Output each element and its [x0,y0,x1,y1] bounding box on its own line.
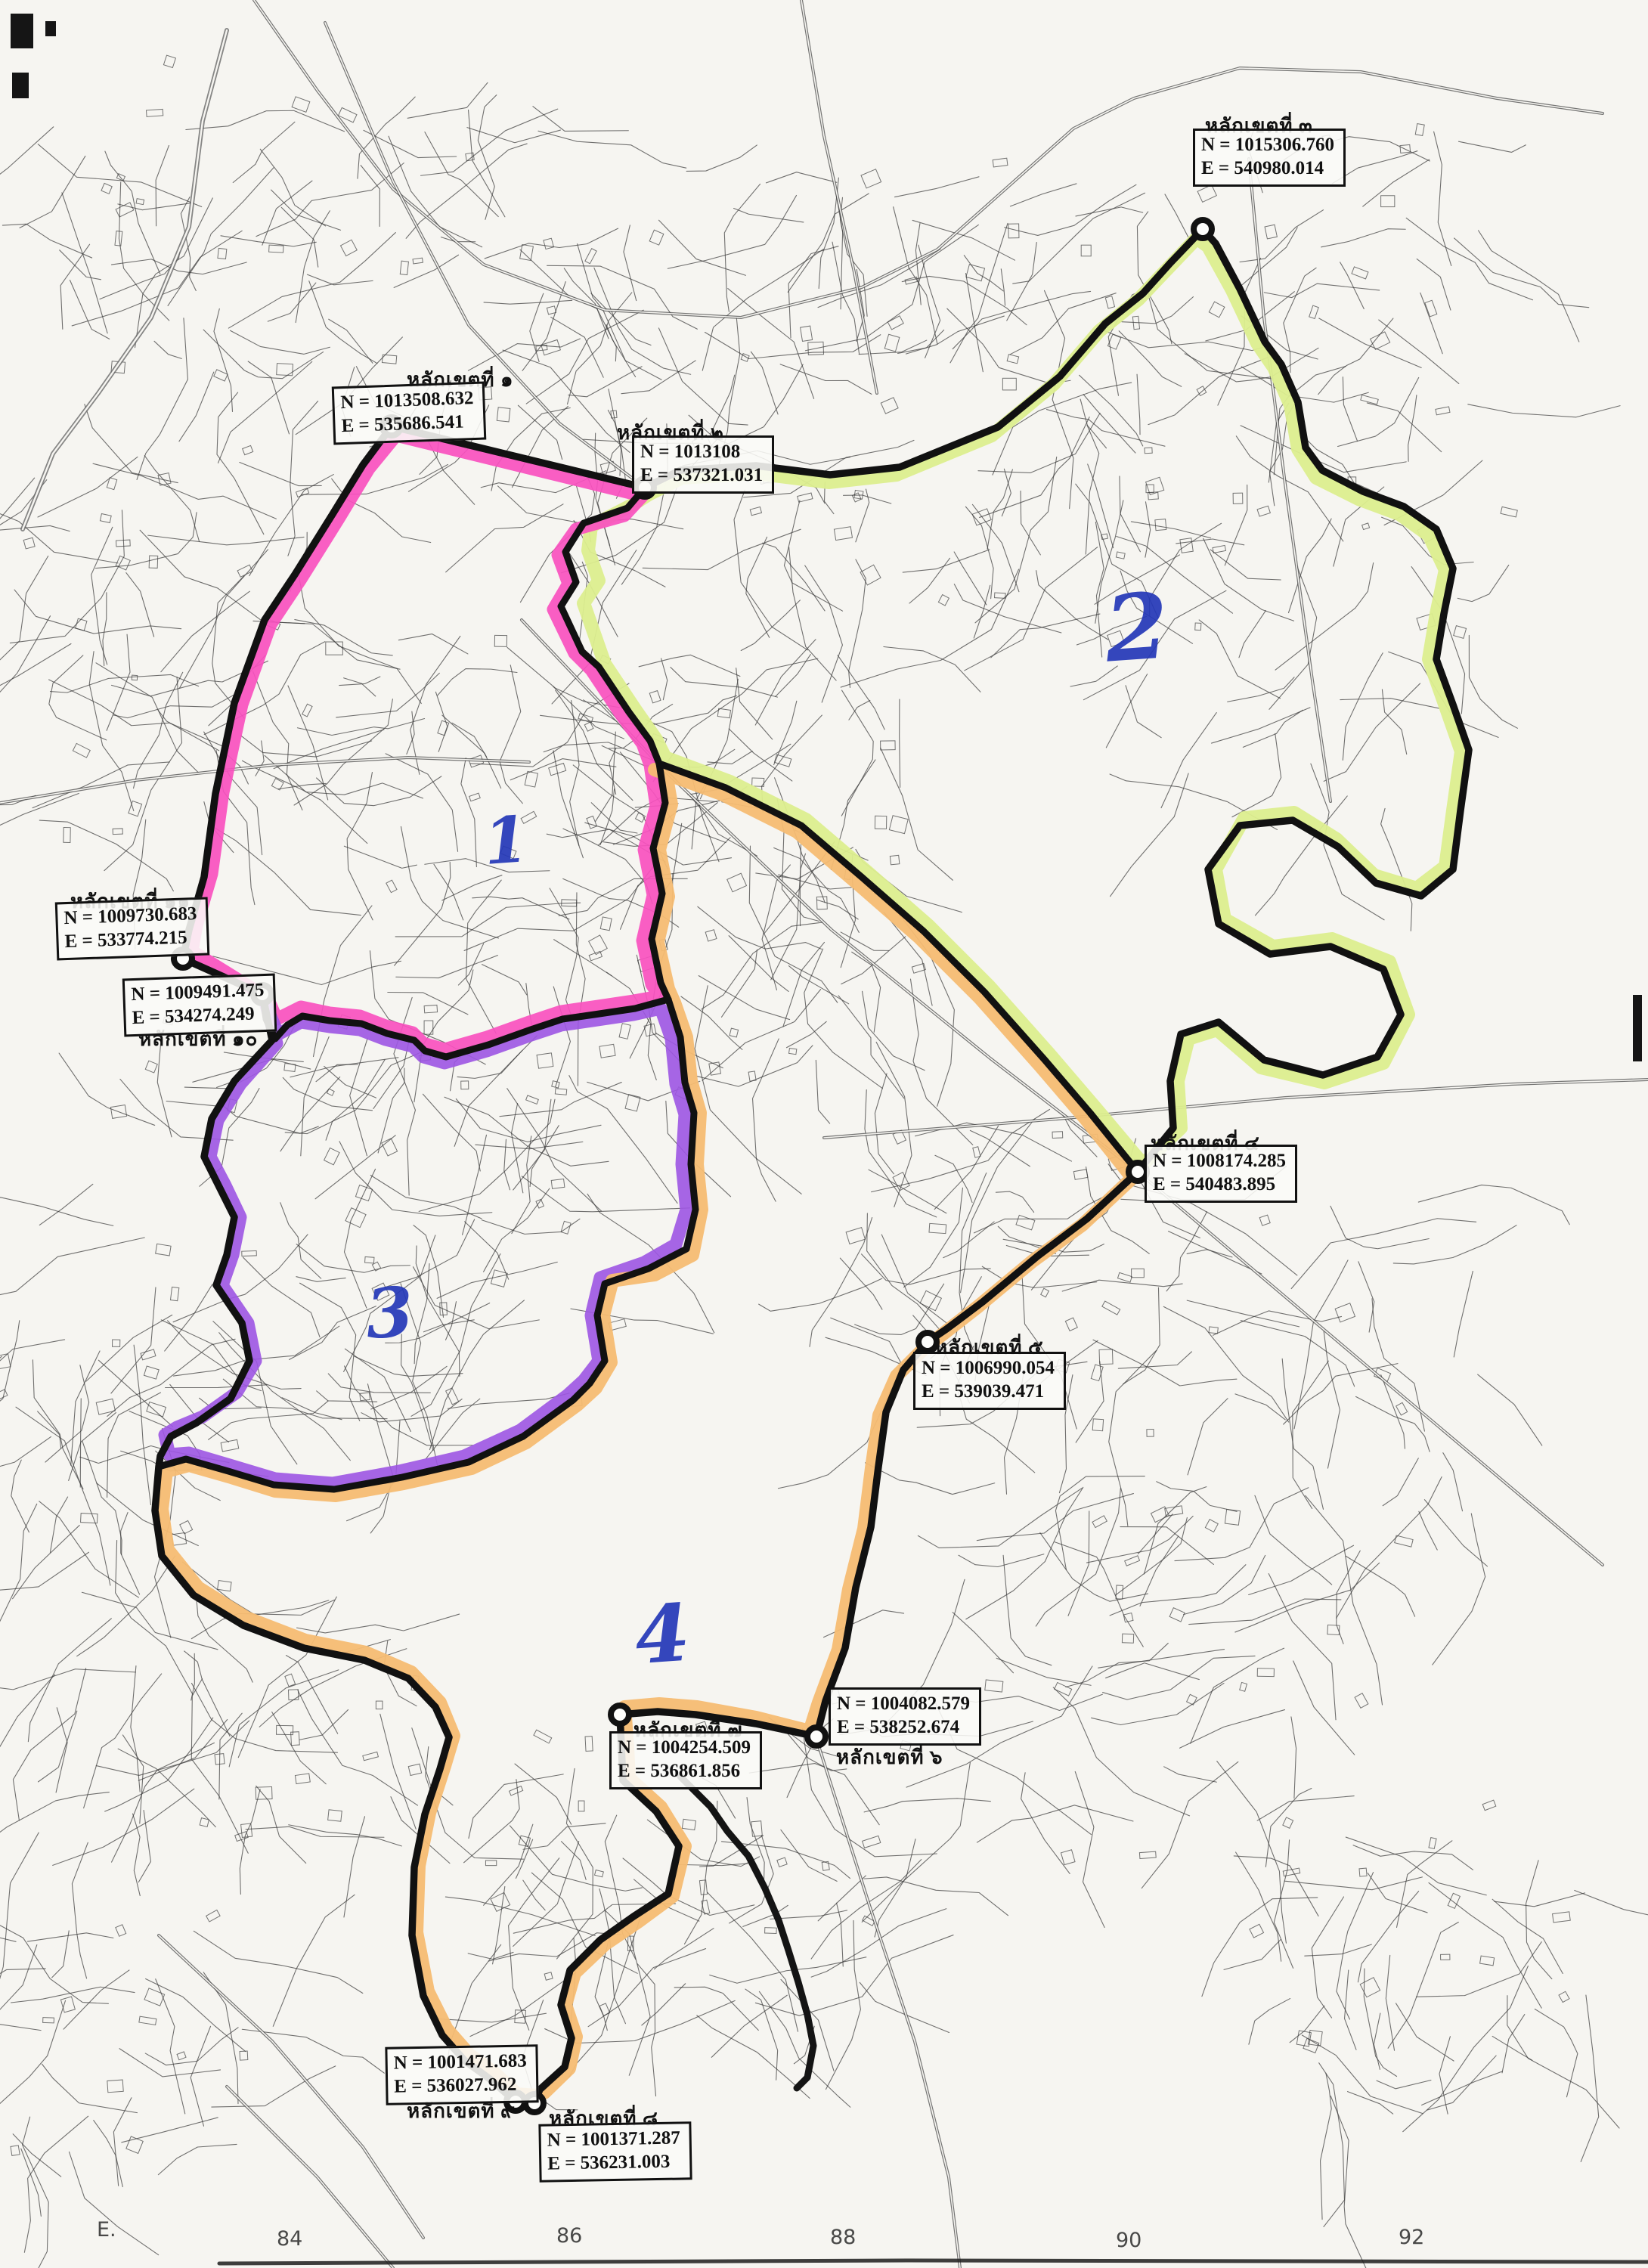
boundary-marker-circle-3 [1194,220,1212,238]
map-canvas [0,0,1648,2268]
street-network [0,55,1648,2268]
boundary-marker-label-11: N = 1009730.683E = 533774.215 [55,897,210,960]
grid-label-90: 90 [1116,2229,1142,2252]
boundary-marker-label-7: N = 1004254.509E = 536861.856 [609,1731,762,1789]
boundary-marker-label-8: N = 1001371.287E = 536231.003 [538,2121,692,2182]
marker-easting: E = 536027.962 [394,2073,528,2099]
marker-easting: E = 538252.674 [837,1715,970,1739]
marker-easting: E = 540483.895 [1153,1173,1286,1196]
marker-northing: N = 1001371.287 [547,2127,680,2152]
marker-easting: E = 537321.031 [640,463,763,487]
boundary-marker-label-6: N = 1004082.579E = 538252.674 [829,1687,981,1746]
boundary-marker-title-6: หลักเขตที่ ๖ [836,1742,943,1773]
marker-northing: N = 1004254.509 [618,1736,751,1759]
boundary-marker-label-5: N = 1006990.054E = 539039.471 [913,1352,1066,1410]
scanned-boundary-map: หลักเขตที่ ๑N = 1013508.632E = 535686.54… [0,0,1648,2268]
marker-easting: E = 539039.471 [922,1380,1055,1403]
grid-label-88: 88 [830,2226,856,2249]
marker-easting: E = 535686.541 [341,410,475,438]
marker-easting: E = 540980.014 [1201,156,1334,180]
marker-northing: N = 1006990.054 [922,1356,1055,1380]
grid-label-86: 86 [556,2224,582,2248]
zone-number-1: 1 [482,801,531,879]
boundary-marker-label-4: N = 1008174.285E = 540483.895 [1145,1145,1297,1203]
boundary-marker-circle-6 [807,1727,826,1746]
marker-northing: N = 1004082.579 [837,1692,970,1715]
major-roads [0,0,1648,2268]
zone-number-4: 4 [632,1586,693,1683]
boundary-marker-label-1: N = 1013508.632E = 535686.541 [332,381,487,445]
marker-northing: N = 1015306.760 [1201,133,1334,156]
marker-northing: N = 1001471.683 [393,2050,527,2075]
marker-northing: N = 1013108 [640,440,763,463]
marker-northing: N = 1008174.285 [1153,1149,1286,1173]
grid-label-E: E. [97,2218,116,2242]
marker-easting: E = 536861.856 [618,1759,751,1783]
boundary-marker-label-10: N = 1009491.475E = 534274.249 [122,973,277,1036]
boundary-marker-circle-7 [611,1706,629,1724]
zone-number-3: 3 [363,1272,416,1355]
marker-easting: E = 534274.249 [132,1002,265,1030]
boundary-marker-label-2: N = 1013108E = 537321.031 [632,435,774,494]
grid-label-92: 92 [1399,2226,1424,2249]
marker-easting: E = 536231.003 [547,2150,681,2176]
boundary-marker-label-9: N = 1001471.683E = 536027.962 [385,2044,538,2105]
grid-label-84: 84 [277,2227,302,2251]
boundary-marker-label-3: N = 1015306.760E = 540980.014 [1193,129,1346,187]
zone-number-2: 2 [1101,572,1172,683]
marker-easting: E = 533774.215 [64,925,198,953]
